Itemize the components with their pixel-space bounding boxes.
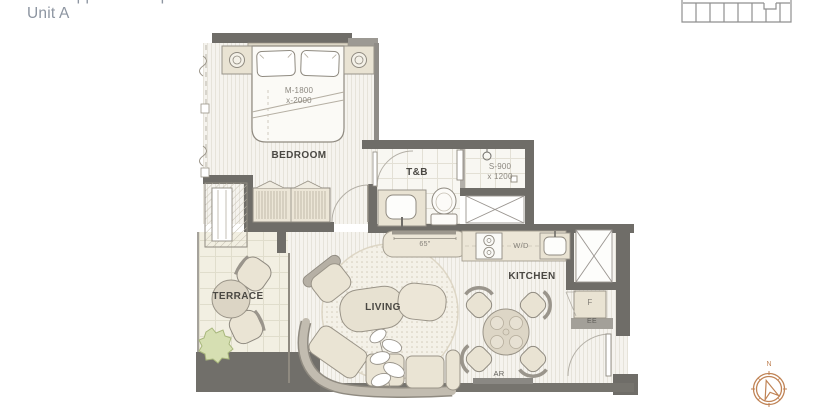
terrace-label: TERRACE (206, 291, 270, 303)
ac-return-label: AR (485, 369, 513, 378)
compass-icon: N (751, 361, 787, 407)
key-plan (682, 0, 791, 22)
nightstand-right (344, 46, 374, 74)
lamp-icon (352, 53, 367, 68)
pillow (301, 50, 340, 76)
furniture-layer: N (0, 0, 818, 417)
living-label: LIVING (356, 302, 410, 314)
window-symbol (200, 45, 210, 178)
lamp-icon (230, 53, 245, 68)
bedroom-label: BEDROOM (259, 150, 339, 162)
entry-door-arc (568, 334, 611, 376)
kitchen-label: KITCHEN (500, 271, 564, 283)
tv-size-label: 65" (409, 241, 441, 249)
closet (205, 183, 247, 247)
fridge-label: F (578, 298, 602, 308)
unit-label: Unit A (27, 5, 70, 23)
shaft-x (466, 196, 524, 223)
compass-north-label: N (766, 361, 771, 368)
ac-return-strip (473, 378, 533, 384)
toilet (431, 188, 457, 225)
shaft-x-right (576, 230, 612, 282)
shower-door-leaf (457, 150, 463, 180)
washer-dryer-label: W/D (505, 241, 537, 250)
dining-set (455, 281, 557, 383)
pillow (257, 50, 296, 76)
dining-table (483, 309, 529, 355)
bed-dimension: M-1800 x-2000 (269, 86, 329, 105)
terrace-plant (199, 328, 233, 363)
kitchen-sink (540, 231, 570, 259)
stove (476, 233, 502, 259)
floor-plan: N Size: Approx. 54 sqm Unit A BEDROOM M-… (0, 0, 818, 417)
vanity-sink (378, 190, 426, 227)
electrical-label: EE (576, 318, 608, 326)
wardrobe (253, 181, 330, 222)
bathroom-label: T&B (398, 167, 436, 179)
shower-dimension: S-900 x 1200 (478, 162, 522, 181)
bedroom-door-arc (332, 185, 369, 222)
nightstand-left (222, 46, 252, 74)
